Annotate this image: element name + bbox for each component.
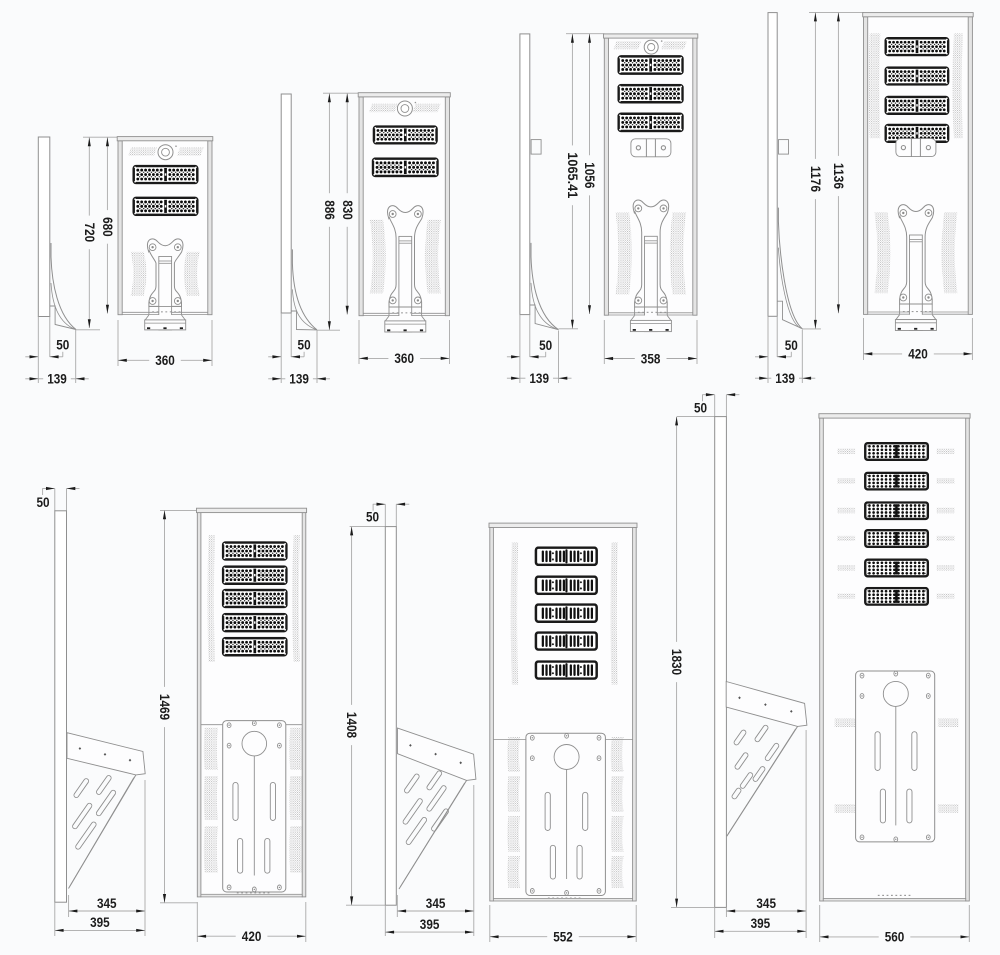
svg-text:139: 139 xyxy=(529,371,549,386)
svg-text:552: 552 xyxy=(553,930,573,945)
svg-text:50: 50 xyxy=(785,338,798,353)
svg-text:680: 680 xyxy=(100,217,115,237)
svg-text:360: 360 xyxy=(155,353,175,368)
svg-text:720: 720 xyxy=(82,223,97,243)
svg-text:1830: 1830 xyxy=(669,649,684,675)
svg-text:1136: 1136 xyxy=(831,163,846,189)
svg-text:50: 50 xyxy=(56,338,69,353)
svg-text:345: 345 xyxy=(756,896,776,911)
svg-text:1176: 1176 xyxy=(808,166,823,192)
svg-text:139: 139 xyxy=(775,371,795,386)
svg-text:50: 50 xyxy=(298,338,311,353)
svg-text:345: 345 xyxy=(97,896,117,911)
svg-text:395: 395 xyxy=(420,917,440,932)
svg-text:830: 830 xyxy=(340,200,355,220)
svg-text:50: 50 xyxy=(36,495,49,510)
svg-text:139: 139 xyxy=(289,372,309,387)
svg-text:139: 139 xyxy=(47,372,67,387)
svg-text:1469: 1469 xyxy=(157,694,172,720)
svg-text:50: 50 xyxy=(694,401,707,416)
svg-text:50: 50 xyxy=(539,338,552,353)
svg-text:1065.41: 1065.41 xyxy=(565,152,580,198)
svg-text:560: 560 xyxy=(885,930,905,945)
svg-text:358: 358 xyxy=(641,351,661,366)
svg-text:886: 886 xyxy=(322,200,337,220)
svg-text:1056: 1056 xyxy=(582,162,597,188)
svg-text:50: 50 xyxy=(366,510,379,525)
svg-text:1408: 1408 xyxy=(344,712,359,738)
svg-text:395: 395 xyxy=(751,916,771,931)
svg-text:395: 395 xyxy=(90,915,110,930)
svg-text:360: 360 xyxy=(394,351,414,366)
svg-text:420: 420 xyxy=(908,347,928,362)
svg-text:345: 345 xyxy=(426,896,446,911)
svg-text:420: 420 xyxy=(242,929,262,944)
